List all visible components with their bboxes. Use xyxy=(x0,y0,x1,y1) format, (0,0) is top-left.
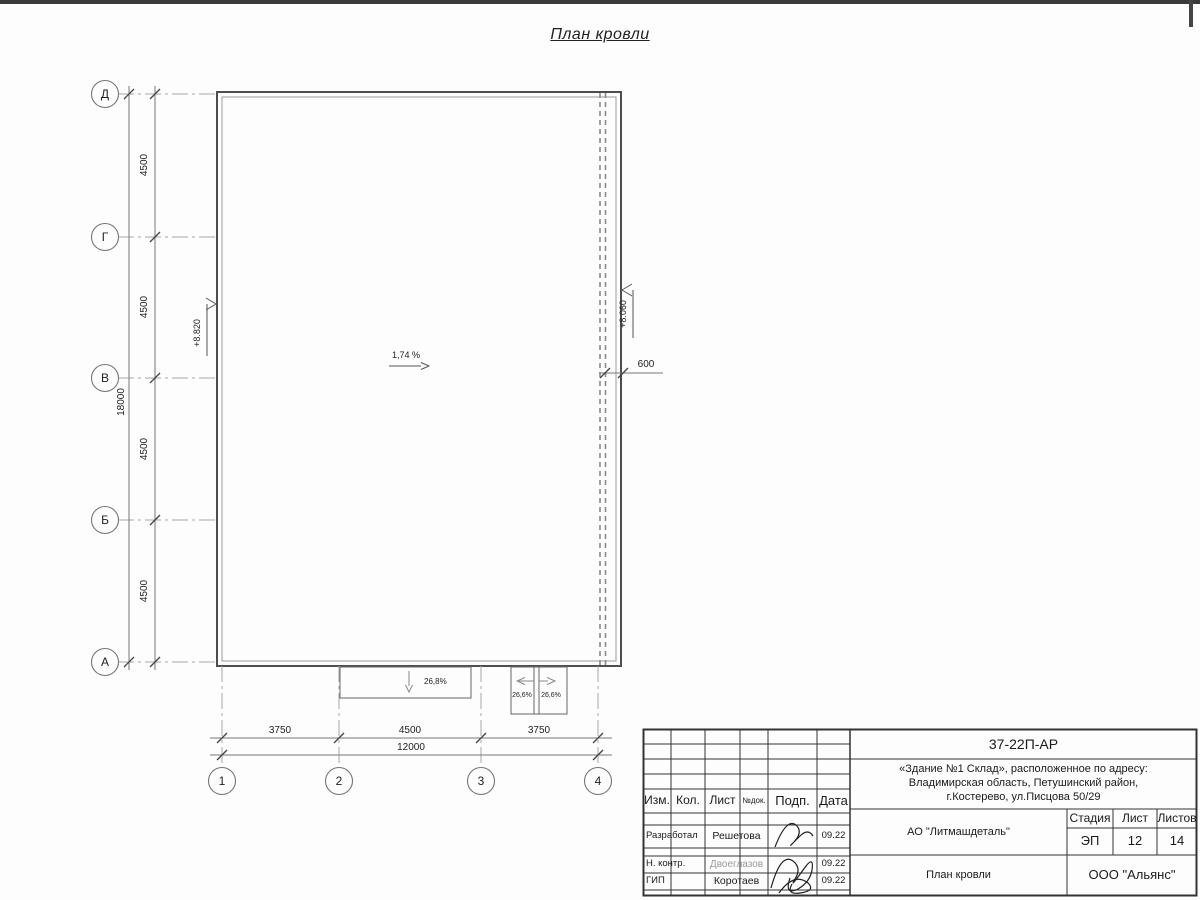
canopy-slope-left: 26,6% xyxy=(512,692,532,699)
dim-h-seg-1: 3750 xyxy=(269,725,292,736)
doc-code: 37-22П-АР xyxy=(850,731,1197,757)
col-header-izm: Изм. xyxy=(643,789,671,813)
col-header-data: Дата xyxy=(817,789,850,813)
col-header-list: Лист xyxy=(705,789,740,813)
slope-value: 1,74 % xyxy=(392,350,420,360)
canopy-slope-value: 26,8% xyxy=(424,677,447,686)
sheet-name: План кровли xyxy=(850,855,1067,896)
address-line-2: Владимирская область, Петушинский район, xyxy=(850,776,1197,790)
axis-col-label: 2 xyxy=(336,774,343,788)
date-razrabotal: 09.22 xyxy=(817,827,850,846)
dim-v-seg-3: 4500 xyxy=(139,437,150,460)
sheet-label: Лист xyxy=(1113,809,1157,828)
stage-value: ЭП xyxy=(1067,828,1113,855)
elevation-left-value: +8.820 xyxy=(192,319,202,347)
date-nkontr: 09.22 xyxy=(817,857,850,872)
role-nkontr: Н. контр. xyxy=(646,857,704,872)
dim-offset-600: 600 xyxy=(638,359,655,370)
axis-row-label: Г xyxy=(102,230,109,244)
dim-v-total: 18000 xyxy=(116,388,127,416)
dimension-ticks xyxy=(124,89,628,760)
customer-org: АО "Литмашдеталь" xyxy=(850,809,1067,855)
slope-annotation: 1,74 % xyxy=(389,350,429,370)
axis-row-label: Д xyxy=(101,87,109,101)
canopy-slope-right: 26,6% xyxy=(541,692,561,699)
elevation-mark-left xyxy=(206,298,216,356)
sheets-value: 14 xyxy=(1157,828,1197,855)
roof-outline xyxy=(217,92,621,666)
dimension-lines xyxy=(129,86,663,755)
col-header-podp: Подп. xyxy=(768,789,817,813)
dim-v-seg-1: 4500 xyxy=(139,153,150,176)
dim-h-seg-3: 3750 xyxy=(528,725,551,736)
canopy-wide: 26,8% xyxy=(340,667,471,698)
dim-h-total: 12000 xyxy=(397,742,425,753)
name-korotaev: Коротаев xyxy=(705,874,768,889)
dimension-texts: 4500 4500 4500 4500 18000 3750 4500 3750… xyxy=(116,153,655,753)
role-gip: ГИП xyxy=(646,874,704,889)
canopy-arrow-right xyxy=(547,678,555,685)
date-gip: 09.22 xyxy=(817,874,850,889)
drawing-sheet: План кровли xyxy=(0,0,1200,900)
elevation-right-value: +8.060 xyxy=(618,300,628,328)
canopy-arrow-down xyxy=(406,685,413,692)
axis-row-label: В xyxy=(101,371,109,385)
address-line-3: г.Костерево, ул.Писцова 50/29 xyxy=(850,790,1197,804)
axis-row-label: А xyxy=(101,655,109,669)
axis-row-label: Б xyxy=(101,513,109,527)
dim-h-seg-2: 4500 xyxy=(399,725,422,736)
sheet-value: 12 xyxy=(1113,828,1157,855)
axis-col-label: 4 xyxy=(595,774,602,788)
dim-v-seg-2: 4500 xyxy=(139,295,150,318)
name-dvoeglazov: Двоеглазов xyxy=(705,857,768,872)
axis-col-label: 3 xyxy=(478,774,485,788)
name-reshetova: Решетова xyxy=(705,827,768,846)
company-name: ООО "Альянс" xyxy=(1067,855,1197,896)
canopy-double: 26,6% 26,6% xyxy=(511,667,567,714)
col-header-ndok: №док. xyxy=(740,789,768,813)
stage-label: Стадия xyxy=(1067,809,1113,828)
col-header-kol: Кол. xyxy=(671,789,705,813)
role-razrabotal: Разработал xyxy=(646,827,704,846)
dim-v-seg-4: 4500 xyxy=(139,579,150,602)
slope-arrowhead xyxy=(421,363,429,370)
axis-col-label: 1 xyxy=(219,774,226,788)
sheets-label: Листов xyxy=(1157,809,1197,828)
address-line-1: «Здание №1 Склад», расположенное по адре… xyxy=(850,762,1197,776)
